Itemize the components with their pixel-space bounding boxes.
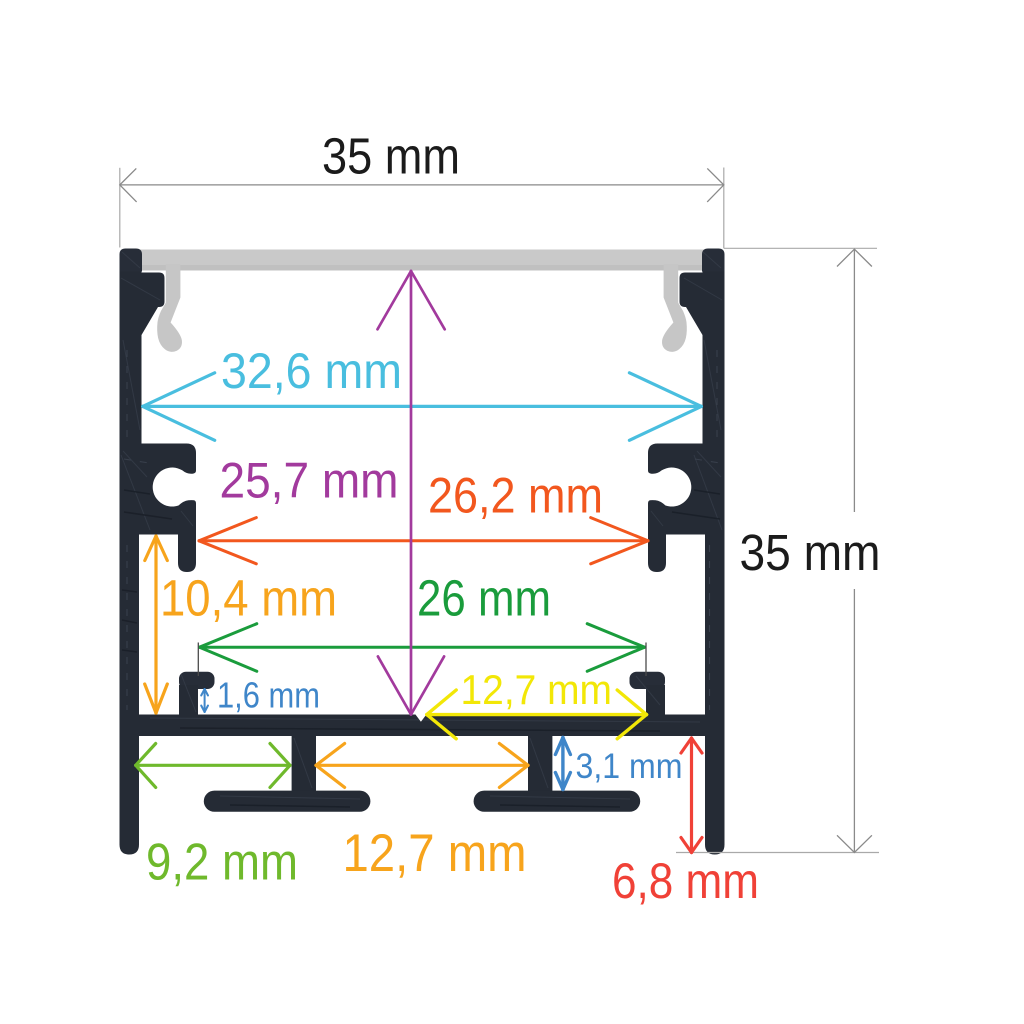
svg-text:12,7 mm: 12,7 mm: [343, 824, 527, 883]
svg-text:35 mm: 35 mm: [740, 524, 881, 581]
svg-text:26,2 mm: 26,2 mm: [428, 468, 603, 524]
svg-text:9,2 mm: 9,2 mm: [146, 834, 298, 892]
svg-text:25,7 mm: 25,7 mm: [220, 453, 399, 509]
svg-text:6,8 mm: 6,8 mm: [612, 853, 759, 909]
svg-text:26 mm: 26 mm: [417, 570, 551, 627]
svg-text:3,1 mm: 3,1 mm: [576, 747, 683, 786]
svg-text:12,7 mm: 12,7 mm: [461, 666, 613, 713]
svg-text:35 mm: 35 mm: [322, 128, 460, 185]
svg-text:10,4 mm: 10,4 mm: [160, 570, 337, 627]
svg-text:32,6 mm: 32,6 mm: [221, 343, 402, 399]
svg-text:1,6 mm: 1,6 mm: [217, 674, 320, 715]
